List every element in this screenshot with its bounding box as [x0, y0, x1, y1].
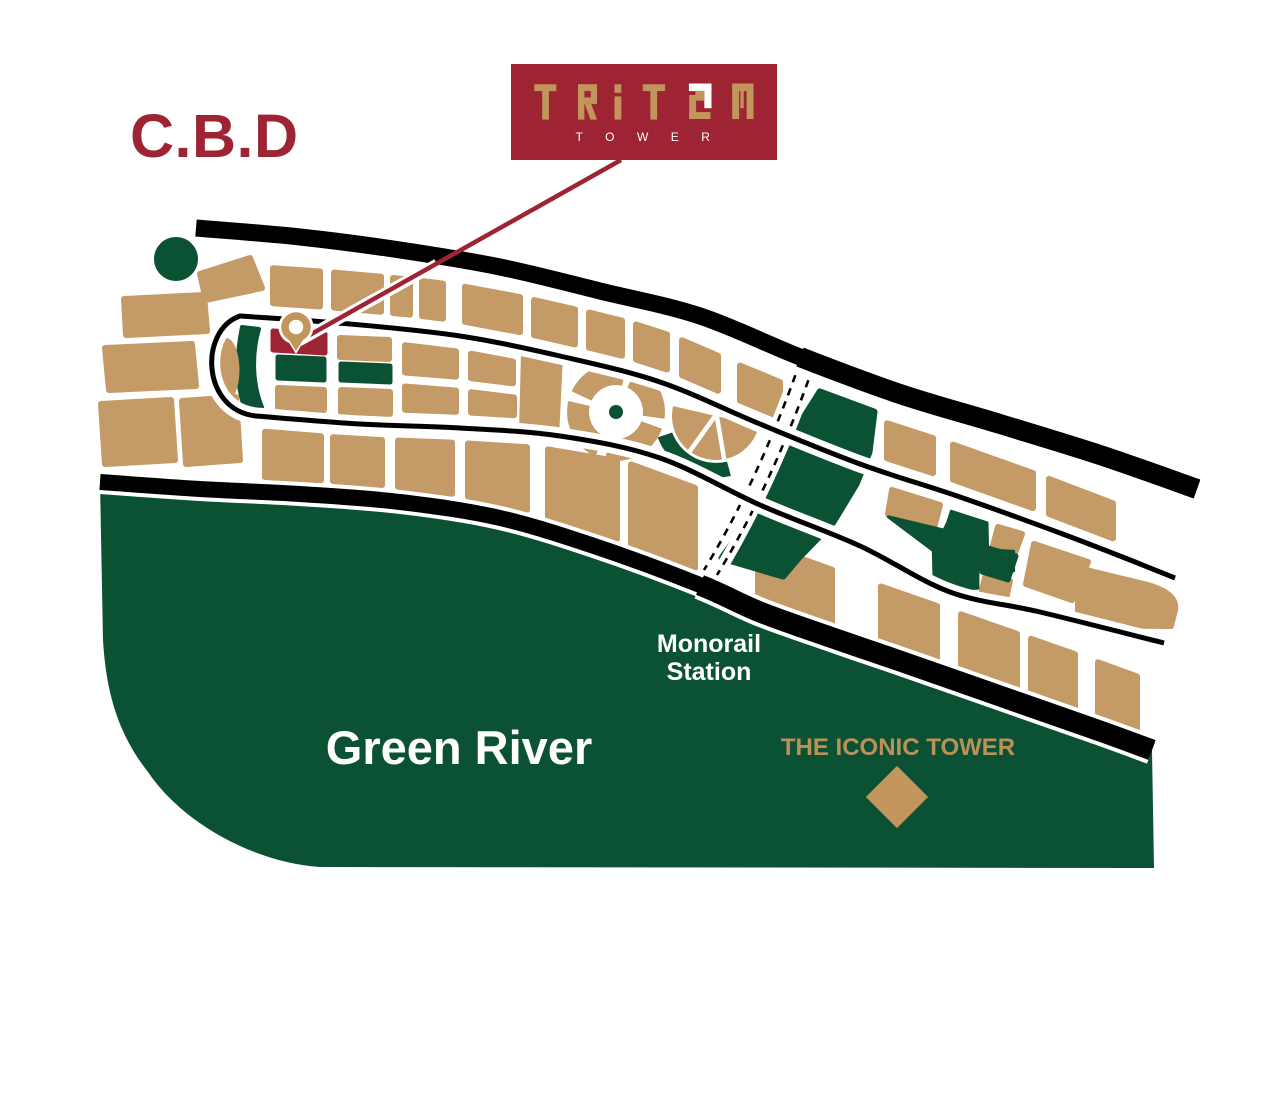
svg-text:C.B.D: C.B.D: [130, 102, 299, 170]
svg-text:Station: Station: [667, 658, 752, 686]
svg-text:THE ICONIC TOWER: THE ICONIC TOWER: [781, 734, 1015, 761]
svg-text:Monorail: Monorail: [657, 630, 761, 658]
svg-text:TOWER: TOWER: [576, 130, 733, 144]
svg-text:Green River: Green River: [326, 721, 592, 774]
